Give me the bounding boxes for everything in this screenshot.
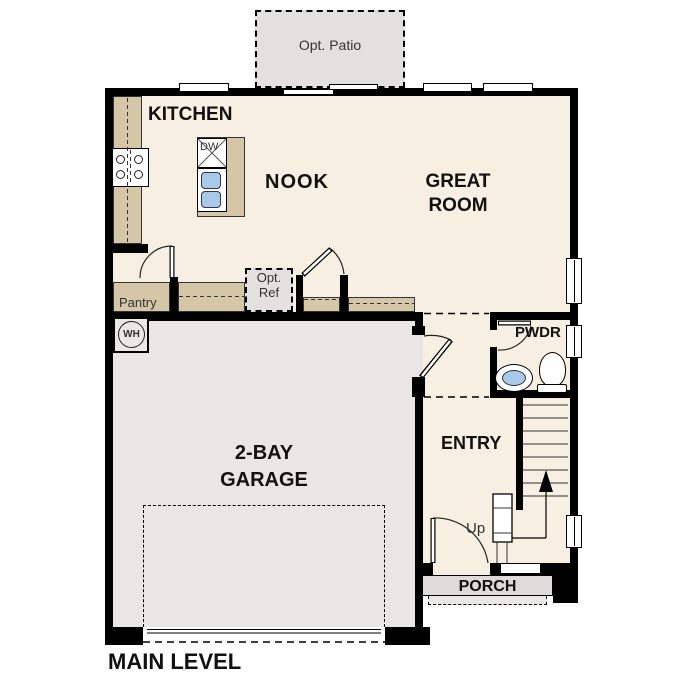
pantry-label: Pantry xyxy=(119,295,157,311)
wall-pwdr-left-lower xyxy=(490,347,497,392)
wall-pantry-post xyxy=(170,277,178,312)
pwdr-label: PWDR xyxy=(515,324,561,343)
great-room-window xyxy=(423,83,472,92)
entry-label: ENTRY xyxy=(441,432,501,455)
wall-garage-top xyxy=(105,312,423,321)
wall-garage-right-lower xyxy=(415,377,423,645)
pwdr-window xyxy=(566,325,582,358)
door-jamb xyxy=(296,275,303,312)
opt-patio-label: Opt. Patio xyxy=(255,37,405,55)
wall-left xyxy=(105,88,113,645)
stove-burner xyxy=(134,170,143,179)
wall-pwdr-left-upper xyxy=(490,320,497,330)
up-label: Up xyxy=(466,520,485,539)
corner-post xyxy=(553,575,578,603)
great-room-window xyxy=(483,83,533,92)
patio-slider-panel xyxy=(329,84,378,90)
great-room-side-window xyxy=(566,258,582,304)
sink-basin xyxy=(201,172,221,189)
nook-label: NOOK xyxy=(265,170,329,195)
kitchen-label: KITCHEN xyxy=(148,103,232,127)
entry-window xyxy=(566,515,582,548)
garage-door-opening xyxy=(143,627,385,645)
door-jamb xyxy=(340,275,348,312)
stove-burner xyxy=(116,170,125,179)
wall-pantry-stub xyxy=(105,244,148,253)
garage-label: 2-BAY GARAGE xyxy=(184,440,344,494)
porch-step xyxy=(428,596,547,605)
stove xyxy=(112,148,149,187)
dw-label: DW xyxy=(200,141,218,155)
toilet-tank xyxy=(537,384,567,393)
door-jamb xyxy=(412,377,425,397)
sink-basin xyxy=(201,191,221,208)
opt-ref-label: Opt. Ref xyxy=(245,271,293,301)
wall-pwdr-top xyxy=(490,312,578,320)
nook-counter-left xyxy=(178,282,245,312)
kitchen-window xyxy=(179,83,229,92)
pwdr-sink-basin xyxy=(502,370,526,386)
stove-burner xyxy=(134,155,143,164)
front-door-opening xyxy=(433,563,490,575)
nook-door-sill xyxy=(303,297,340,312)
floor-plan: Opt. Patio WH xyxy=(0,0,687,687)
front-threshold xyxy=(500,563,541,574)
door-jamb xyxy=(412,326,425,335)
water-heater-label: WH xyxy=(118,329,145,342)
garage-door-swing-area xyxy=(143,505,385,627)
main-level-title: MAIN LEVEL xyxy=(108,648,241,676)
great-room-label: GREAT ROOM xyxy=(408,170,508,218)
stove-burner xyxy=(116,155,125,164)
toilet-bowl xyxy=(539,352,566,387)
porch-label: PORCH xyxy=(422,577,553,597)
nook-counter-right xyxy=(348,297,415,312)
patio-slider-panel xyxy=(283,89,334,95)
